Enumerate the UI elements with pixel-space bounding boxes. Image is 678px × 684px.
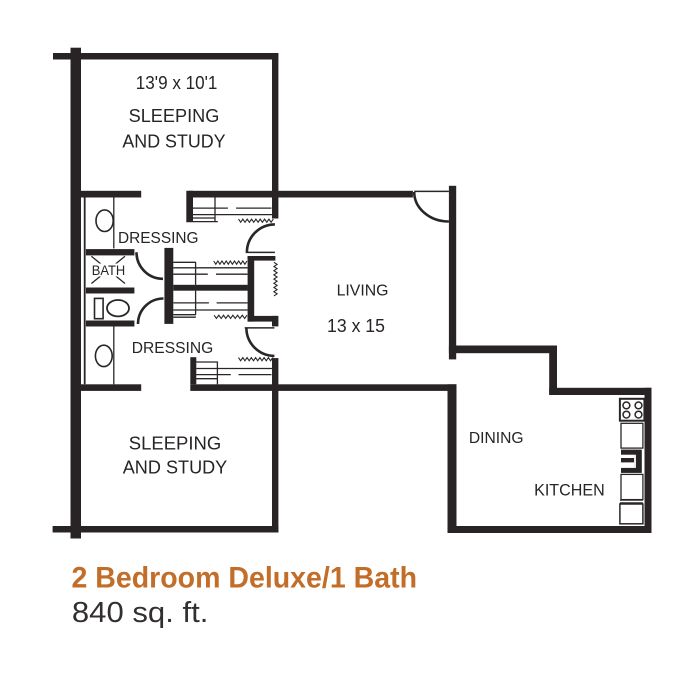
svg-text:SLEEPING: SLEEPING: [129, 106, 220, 126]
svg-text:AND STUDY: AND STUDY: [123, 458, 228, 478]
svg-text:DRESSING: DRESSING: [118, 230, 199, 247]
svg-text:SLEEPING: SLEEPING: [129, 434, 222, 454]
svg-text:13 x 15: 13 x 15: [327, 316, 385, 336]
svg-text:DINING: DINING: [469, 430, 524, 447]
svg-text:DRESSING: DRESSING: [132, 340, 213, 357]
svg-text:840 sq. ft.: 840 sq. ft.: [72, 597, 209, 629]
svg-text:BATH: BATH: [92, 263, 126, 278]
svg-text:2 Bedroom Deluxe/1 Bath: 2 Bedroom Deluxe/1 Bath: [72, 562, 418, 595]
svg-text:AND STUDY: AND STUDY: [122, 132, 225, 152]
svg-text:LIVING: LIVING: [337, 283, 389, 300]
svg-text:KITCHEN: KITCHEN: [534, 480, 605, 499]
svg-text:13'9 x 10'1: 13'9 x 10'1: [136, 73, 218, 93]
